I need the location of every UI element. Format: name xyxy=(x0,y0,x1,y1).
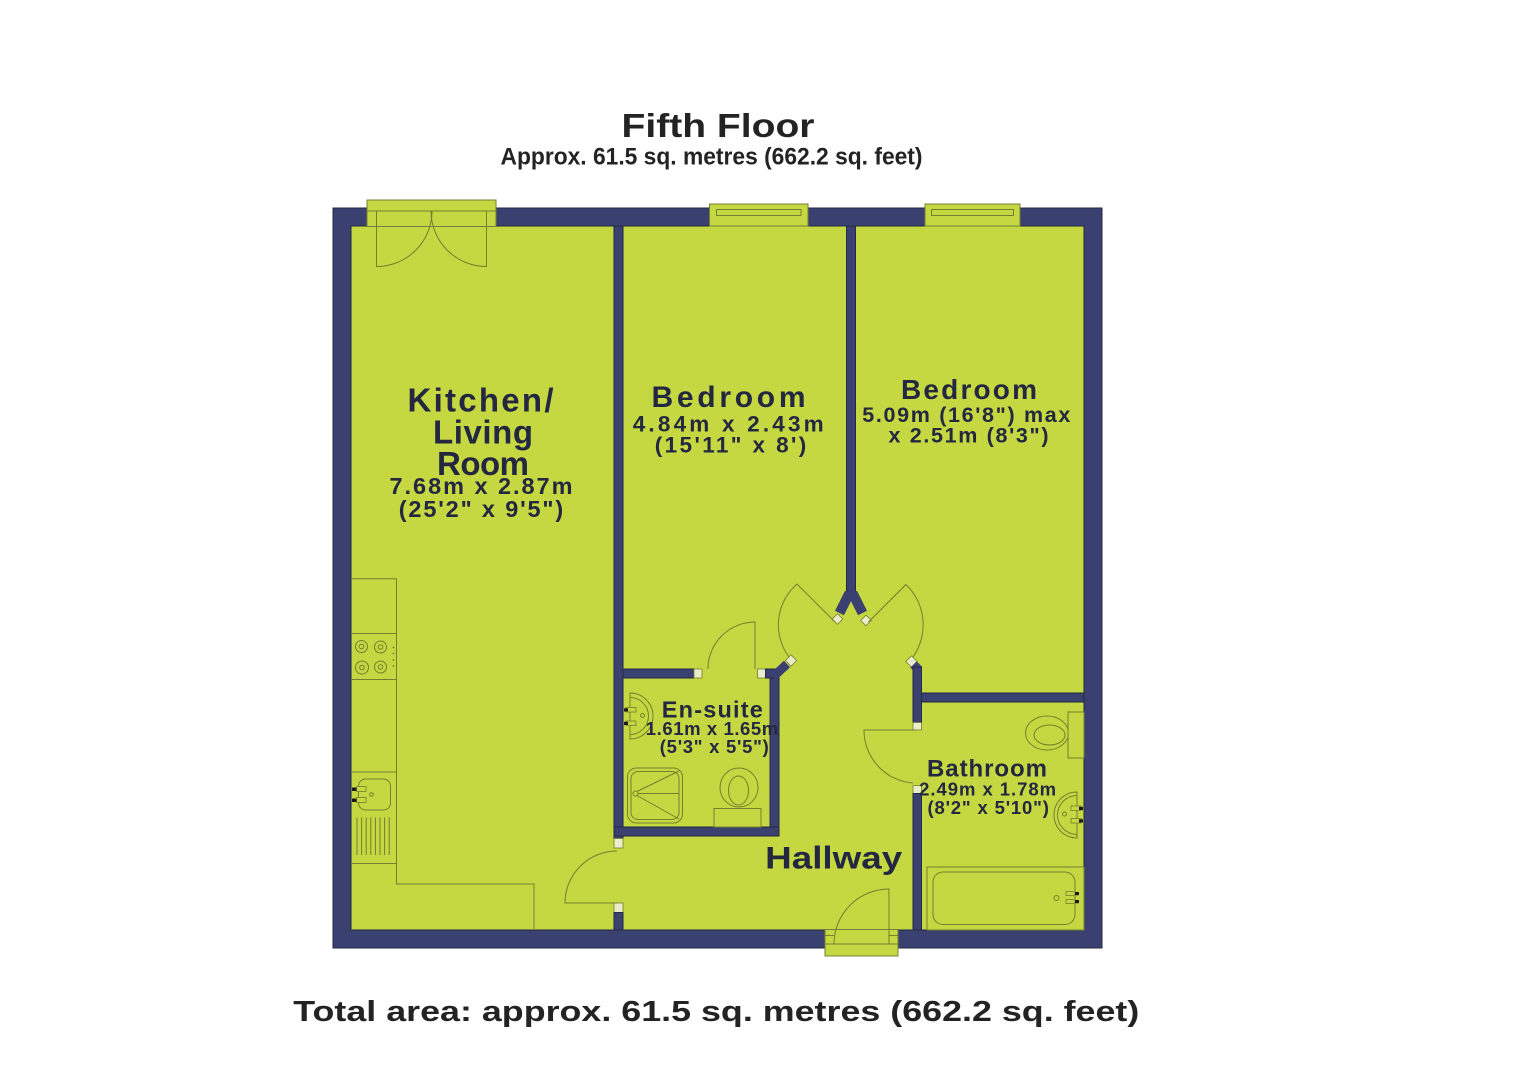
svg-text:Fifth Floor: Fifth Floor xyxy=(622,108,815,145)
svg-text:Hallway: Hallway xyxy=(765,839,903,875)
svg-text:(8'2" x 5'10"): (8'2" x 5'10") xyxy=(927,797,1048,818)
svg-text:(5'3" x 5'5"): (5'3" x 5'5") xyxy=(660,736,769,757)
svg-text:(25'2" x 9'5"): (25'2" x 9'5") xyxy=(399,496,564,522)
svg-text:x 2.51m (8'3"): x 2.51m (8'3") xyxy=(889,423,1049,447)
svg-text:Approx. 61.5 sq. metres (662.2: Approx. 61.5 sq. metres (662.2 sq. feet) xyxy=(501,144,923,171)
svg-text:Total area: approx. 61.5 sq. m: Total area: approx. 61.5 sq. metres (662… xyxy=(293,996,1139,1028)
